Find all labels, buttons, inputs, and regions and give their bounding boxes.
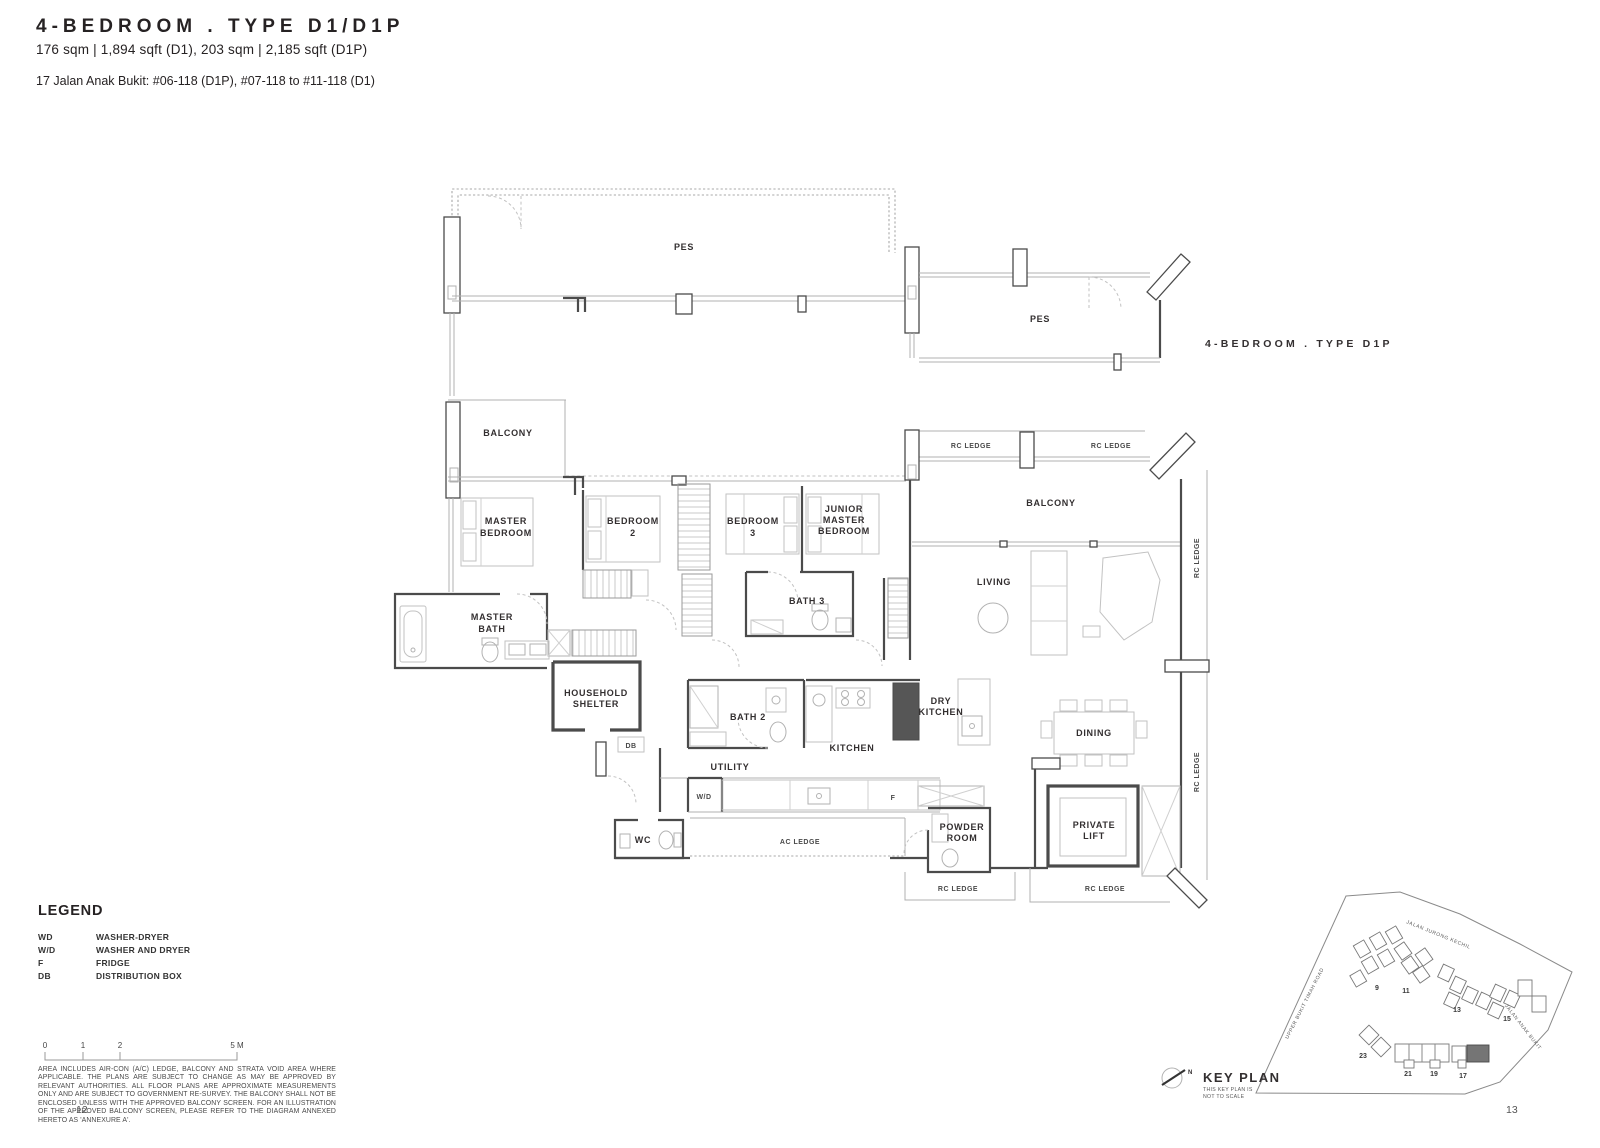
unit-service-wing	[553, 662, 1207, 908]
room-label-dry-kitchen: DRYKITCHEN	[919, 696, 964, 717]
scale-tick-0: 0	[43, 1041, 48, 1050]
room-label-master-bedroom: MASTERBEDROOM	[480, 516, 532, 538]
tag-rc-ledge-bottom-2: RC LEDGE	[1085, 886, 1125, 893]
tag-rc-ledge-bottom-1: RC LEDGE	[938, 886, 978, 893]
room-label-bedroom-3: BEDROOM3	[727, 516, 779, 538]
room-label-balcony-right: BALCONY	[1026, 498, 1075, 508]
room-label-kitchen: KITCHEN	[830, 743, 875, 753]
compass-north-label: N	[1188, 1070, 1192, 1076]
legend-heading: LEGEND	[38, 903, 190, 919]
room-label-living: LIVING	[977, 577, 1011, 587]
keyplan-block-9: 9	[1375, 985, 1379, 992]
keyplan-block-13: 13	[1453, 1007, 1461, 1014]
keyplan-highlighted-unit	[1467, 1045, 1489, 1062]
room-label-bedroom-2: BEDROOM2	[607, 516, 659, 538]
keyplan-block-23: 23	[1359, 1053, 1367, 1060]
pes-area-2	[910, 249, 1190, 370]
room-label-junior-master: JUNIORMASTERBEDROOM	[818, 504, 870, 536]
keyplan-road-upper-bukit-timah: UPPER BUKIT TIMAH ROAD	[1284, 967, 1325, 1040]
room-label-master-bath: MASTERBATH	[471, 612, 513, 634]
pes-area-1	[444, 189, 919, 396]
room-labels: PES PES 4-BEDROOM . TYPE D1P BALCONY MAS…	[471, 242, 1393, 893]
tag-fridge: F	[891, 795, 896, 802]
compass-icon: N	[1162, 1068, 1192, 1088]
room-label-utility: UTILITY	[711, 762, 750, 772]
keyplan-block-21: 21	[1404, 1071, 1412, 1078]
page-number-left: 12	[76, 1104, 88, 1116]
tag-rc-ledge-top-2: RC LEDGE	[1091, 443, 1131, 450]
keyplan-cluster-9-11	[1350, 926, 1433, 987]
legend-row-f: F FRIDGE	[38, 958, 190, 968]
room-label-balcony-left: BALCONY	[483, 428, 532, 438]
scale-tick-2: 2	[118, 1041, 123, 1050]
room-label-private-lift: PRIVATELIFT	[1073, 820, 1116, 841]
keyplan-block-17: 17	[1459, 1073, 1467, 1080]
room-label-household-shelter: HOUSEHOLDSHELTER	[564, 688, 628, 709]
legend-row-wd: WD WASHER-DRYER	[38, 932, 190, 942]
legend: LEGEND WD WASHER-DRYER W/D WASHER AND DR…	[38, 903, 190, 984]
scale-tick-5m: 5 M	[230, 1041, 244, 1050]
keyplan-note: THIS KEY PLAN ISNOT TO SCALE	[1203, 1087, 1253, 1100]
tag-rc-ledge-right-1: RC LEDGE	[1194, 538, 1201, 578]
legend-row-db: DB DISTRIBUTION BOX	[38, 971, 190, 981]
room-label-bath-3: BATH 3	[789, 596, 825, 606]
variant-label: 4-BEDROOM . TYPE D1P	[1205, 338, 1393, 350]
floorplan-page: { "header": { "title": "4-BEDROOM . TYPE…	[0, 0, 1600, 1148]
room-label-dining: DINING	[1076, 728, 1112, 738]
room-label-bath-2: BATH 2	[730, 712, 766, 722]
disclaimer-text: AREA INCLUDES AIR-CON (A/C) LEDGE, BALCO…	[38, 1066, 336, 1125]
legend-row-w-d: W/D WASHER AND DRYER	[38, 945, 190, 955]
room-label-pes-2: PES	[1030, 314, 1050, 324]
tag-wd: W/D	[696, 794, 711, 801]
keyplan-block-19: 19	[1430, 1071, 1438, 1078]
floor-plan-drawing: PES PES 4-BEDROOM . TYPE D1P BALCONY MAS…	[0, 0, 1600, 1148]
room-label-wc: WC	[635, 835, 651, 845]
scale-bar: 0 1 2 5 M	[43, 1041, 244, 1060]
page-number-right: 13	[1506, 1104, 1518, 1116]
keyplan-road-jalan-jurong-kechil: JALAN JURONG KECHIL	[1405, 919, 1471, 950]
keyplan-title: KEY PLAN	[1203, 1070, 1281, 1085]
keyplan-block-15: 15	[1503, 1016, 1511, 1023]
tag-ac-ledge: AC LEDGE	[780, 839, 820, 846]
key-plan: 9 11 13 15 23 21 19 17 JALAN JURONG KECH…	[1162, 892, 1572, 1100]
tag-rc-ledge-right-2: RC LEDGE	[1194, 752, 1201, 792]
keyplan-block-11: 11	[1402, 988, 1410, 995]
tag-rc-ledge-top-1: RC LEDGE	[951, 443, 991, 450]
room-label-powder-room: POWDERROOM	[940, 822, 985, 843]
scale-tick-1: 1	[81, 1041, 86, 1050]
room-label-pes-1: PES	[674, 242, 694, 252]
tag-db: DB	[625, 743, 636, 750]
